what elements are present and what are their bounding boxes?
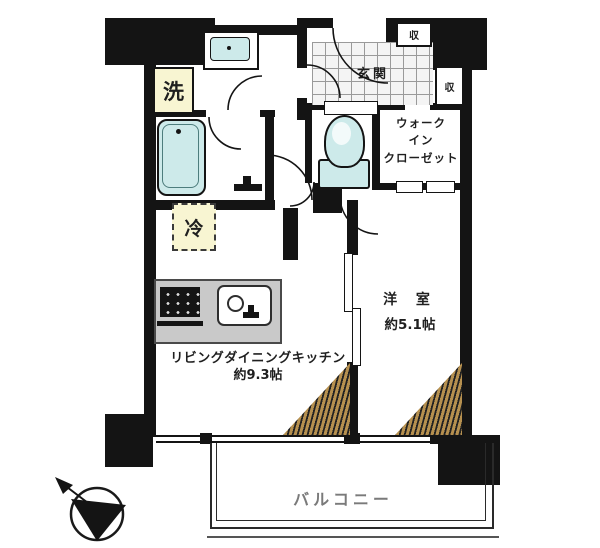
storage-box-upper: 収 bbox=[396, 22, 432, 47]
wall-top-right-block bbox=[433, 18, 487, 70]
wall-left bbox=[144, 60, 156, 437]
vanity-drain-dot bbox=[227, 46, 231, 50]
bathtub-inner-rim bbox=[162, 124, 199, 188]
compass bbox=[55, 477, 126, 541]
compass-circle bbox=[71, 488, 123, 540]
bathroom-door-arc bbox=[209, 117, 241, 149]
compass-north-arrowhead bbox=[55, 477, 73, 494]
wall-center-divider-top bbox=[347, 200, 358, 255]
wall-washroom-entrance-divider-upper bbox=[297, 18, 307, 68]
compass-needle bbox=[63, 484, 88, 503]
walk-in-closet-label: ウォーク イン クローゼット bbox=[377, 115, 465, 167]
bath-counter-tap bbox=[243, 176, 251, 185]
balcony-ground-line bbox=[207, 536, 499, 538]
stove bbox=[160, 287, 200, 317]
sink-drain-stem bbox=[248, 305, 254, 314]
window-ldk-left bbox=[156, 435, 200, 443]
wall-bottom-left-block bbox=[105, 414, 153, 467]
wall-wic-bottom-a bbox=[377, 183, 398, 190]
bathtub-faucet-dot bbox=[176, 129, 181, 134]
compass-triangle bbox=[71, 499, 126, 541]
kitchen-sink bbox=[217, 285, 272, 326]
window-bedroom-balcony bbox=[360, 435, 430, 443]
stove-front-bar bbox=[157, 321, 203, 326]
vanity-faucet bbox=[192, 40, 203, 54]
entrance-label: 玄関 bbox=[330, 63, 416, 82]
wic-sliding-door-b bbox=[426, 181, 455, 193]
sliding-door-panel-a bbox=[344, 253, 353, 312]
storage-entry-label: 収 bbox=[445, 79, 455, 94]
wall-hall-toilet bbox=[305, 103, 312, 183]
entrance-step bbox=[324, 101, 378, 115]
sink-faucet bbox=[227, 295, 244, 312]
refrigerator-box: 冷 bbox=[172, 203, 216, 251]
wall-entrance-top-left bbox=[307, 18, 333, 28]
refrigerator-label: 冷 bbox=[184, 214, 203, 241]
balcony-railing-inner bbox=[216, 443, 486, 521]
wall-kitchen-stub bbox=[283, 208, 298, 260]
toilet-bowl-highlight bbox=[332, 122, 351, 145]
wall-bathroom-right bbox=[265, 110, 274, 210]
floor-plan: 玄関 収 収 ウォーク イン クローゼット 洗 冷 洋 室 約5.1帖 リビング… bbox=[0, 0, 600, 548]
washroom-door-arc bbox=[228, 76, 262, 110]
toilet-door-arc bbox=[290, 182, 314, 206]
storage-box-entry: 収 bbox=[435, 66, 464, 106]
ldk-size-label: 約9.3帖 bbox=[160, 364, 356, 383]
window-ldk-balcony bbox=[212, 435, 344, 443]
bedroom-label: 洋 室 bbox=[358, 289, 462, 309]
washing-machine-box: 洗 bbox=[153, 67, 194, 114]
bath-counter-bar bbox=[234, 184, 262, 191]
hatch-triangle-bedroom bbox=[395, 363, 462, 435]
storage-upper-label: 収 bbox=[409, 27, 419, 42]
wic-sliding-door-a bbox=[396, 181, 423, 193]
washing-machine-label: 洗 bbox=[163, 76, 184, 106]
bedroom-size-label: 約5.1帖 bbox=[358, 313, 462, 333]
bedroom-door-arc bbox=[340, 196, 378, 234]
